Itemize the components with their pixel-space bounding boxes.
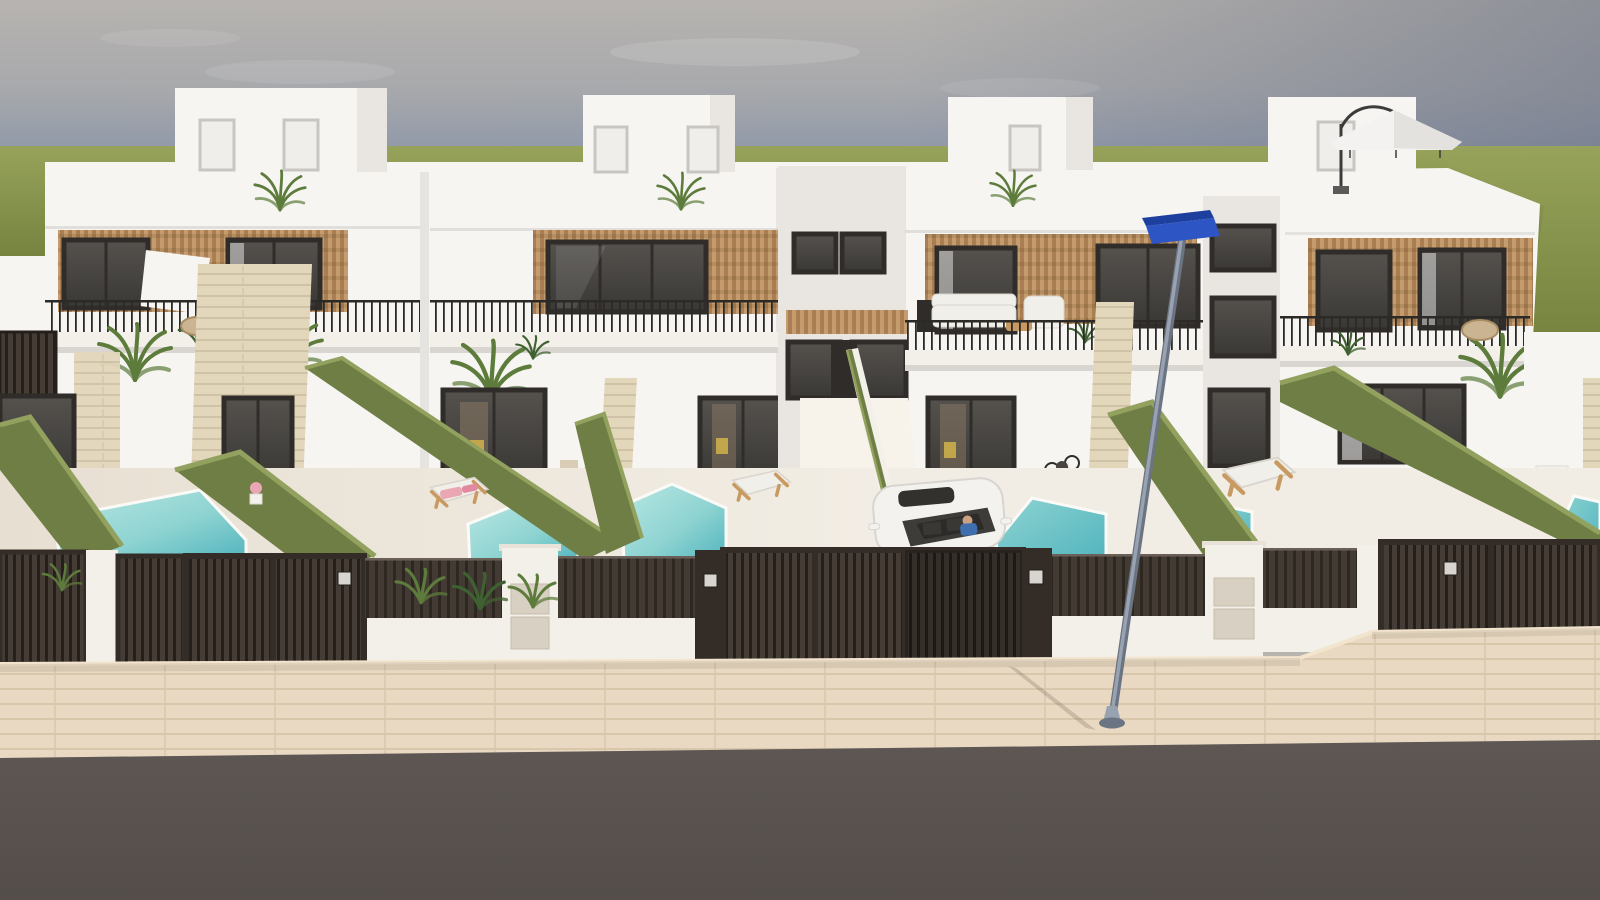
- roof-door: [1010, 126, 1040, 170]
- balcony-railing: [430, 302, 790, 334]
- flowers: [250, 482, 262, 494]
- fence-base-wall: [558, 616, 695, 664]
- parapet-shadow: [1285, 232, 1535, 235]
- rattan-chair: [1462, 320, 1498, 340]
- number-plaque: [338, 572, 351, 585]
- roof-door: [200, 120, 234, 170]
- cloud: [610, 38, 860, 66]
- slab-shadow: [430, 347, 790, 353]
- car-body-group: [865, 476, 1014, 558]
- cloud: [940, 78, 1100, 98]
- interior-light: [940, 404, 966, 476]
- number-plaque: [1029, 570, 1043, 584]
- number-plaque: [704, 574, 717, 587]
- fence-top-edge: [558, 556, 695, 559]
- umbrella-base: [1333, 186, 1349, 194]
- gate-stile: [812, 550, 818, 666]
- gate-house-1: [186, 556, 364, 666]
- window: [842, 234, 884, 272]
- mailbox-panel: [1214, 578, 1254, 606]
- stone-column: [1583, 378, 1600, 474]
- side-mirror: [868, 523, 879, 530]
- interior-chair: [944, 442, 956, 458]
- car-seat: [923, 522, 942, 536]
- gate-house-2: [695, 550, 905, 666]
- driver-torso: [960, 523, 978, 536]
- balcony-slab: [905, 350, 1205, 365]
- gate-house-3: [905, 548, 1052, 668]
- curtain: [1422, 253, 1436, 325]
- interior-light: [712, 404, 736, 470]
- facade-joint: [420, 172, 429, 512]
- roof-door: [284, 120, 318, 170]
- roof-door: [595, 127, 627, 172]
- balcony-railing: [905, 322, 1205, 352]
- window: [1212, 298, 1274, 356]
- render-scene: [0, 0, 1600, 900]
- fence-top-edge: [365, 558, 502, 561]
- roof-box-side: [1066, 97, 1093, 170]
- side-mirror: [1000, 518, 1011, 525]
- lamp-base-foot: [1099, 718, 1125, 729]
- gate-stile: [270, 556, 276, 666]
- stone-column: [1088, 302, 1134, 494]
- fence-base-wall: [365, 616, 502, 664]
- gate: [0, 552, 86, 664]
- number-plaque: [1444, 562, 1457, 575]
- gate-post: [1022, 548, 1052, 666]
- roof-box-side: [357, 88, 387, 172]
- cloud: [100, 29, 240, 47]
- interior-chair: [716, 438, 728, 454]
- mailbox-pillar-2: [1202, 541, 1266, 661]
- mailbox-panel: [1214, 609, 1254, 639]
- balcony-slab: [430, 332, 790, 347]
- gate-shading: [905, 550, 1023, 668]
- cloud: [205, 60, 395, 84]
- mailbox-panel: [511, 617, 549, 649]
- gate-post: [695, 550, 723, 666]
- fence-top-edge: [1263, 548, 1357, 551]
- window: [1212, 226, 1274, 270]
- fence-slats: [558, 556, 695, 618]
- wood-lintel: [786, 310, 908, 334]
- roof-door: [688, 127, 718, 172]
- parapet-shadow: [45, 226, 420, 229]
- fence-slats: [1263, 548, 1357, 608]
- alley: [778, 166, 916, 512]
- road: [0, 740, 1600, 900]
- fence-pillar: [86, 550, 118, 666]
- window: [1210, 390, 1268, 466]
- mailbox-pillar-1: [499, 544, 561, 666]
- window: [794, 234, 836, 272]
- balcony-slab: [1280, 346, 1530, 361]
- fence-top-edge: [1052, 554, 1205, 557]
- alley-floor: [800, 398, 916, 470]
- planter-pot: [250, 494, 262, 504]
- gate: [118, 556, 184, 664]
